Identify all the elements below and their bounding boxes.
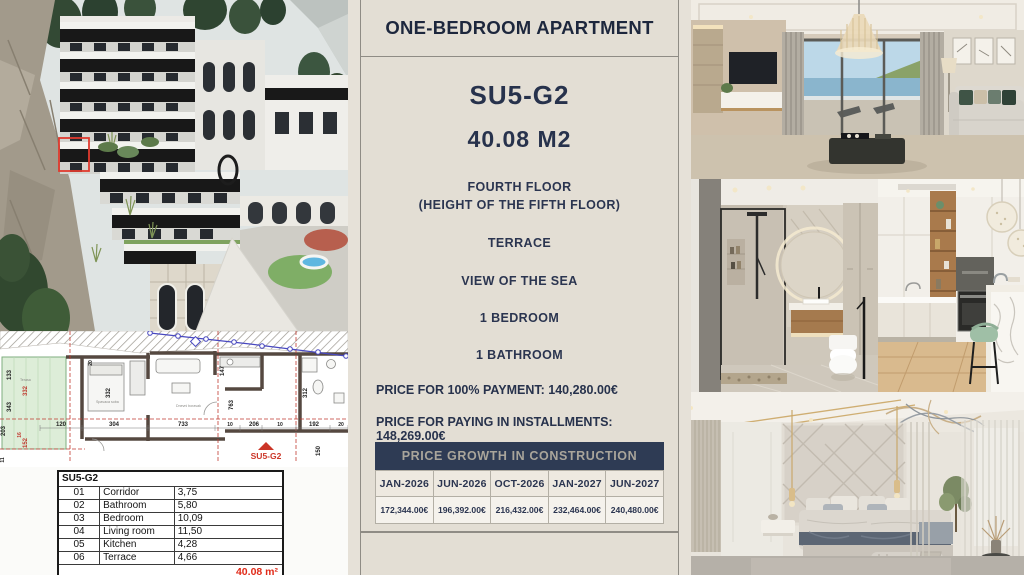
svg-text:Terasa: Terasa — [20, 378, 31, 382]
growth-col-header: JUN-2026 — [433, 471, 491, 497]
shower — [721, 205, 785, 379]
svg-text:343: 343 — [7, 401, 13, 412]
price-installments: PRICE FOR PAYING IN INSTALLMENTS: 148,26… — [376, 415, 670, 443]
table-row: 06Terrace4,66 — [58, 552, 283, 565]
table-row: JAN-2026 JUN-2026 OCT-2026 JAN-2027 JUN-… — [376, 471, 664, 497]
room-area-table: SU5-G2 01Corridor3,75 02Bathroom5,80 03B… — [57, 470, 284, 575]
row-name: Kitchen — [100, 539, 175, 552]
row-num: 01 — [58, 487, 100, 500]
svg-text:20: 20 — [338, 422, 344, 428]
table-row: 03Bedroom10,09 — [58, 513, 283, 526]
svg-text:Dnevni boravak: Dnevni boravak — [176, 404, 201, 408]
bathroom-photo — [691, 179, 878, 392]
room-table-title: SU5-G2 — [58, 471, 283, 487]
svg-text:152: 152 — [23, 437, 29, 448]
table-row: 04Living room11,50 — [58, 526, 283, 539]
row-num: 04 — [58, 526, 100, 539]
price-growth-table: JAN-2026 JUN-2026 OCT-2026 JAN-2027 JUN-… — [375, 470, 664, 524]
price-inst-value: 148,269.00€ — [376, 429, 446, 443]
slat-panel — [691, 420, 721, 552]
growth-value: 232,464.00€ — [548, 497, 606, 524]
svg-text:763: 763 — [229, 399, 235, 410]
table-row: 02Bathroom5,80 — [58, 500, 283, 513]
growth-value: 172,344.00€ — [376, 497, 434, 524]
row-num: 02 — [58, 500, 100, 513]
table-row: 01Corridor3,75 — [58, 487, 283, 500]
svg-text:20: 20 — [88, 360, 94, 366]
living-room-photo — [691, 0, 1024, 179]
apartment-flyer: 120 304 733 10 206 10 192 20 133 343 203… — [0, 0, 1024, 575]
feature-bathroom: 1 BATHROOM — [361, 348, 678, 362]
side-wall — [699, 179, 721, 392]
growth-value: 216,432.00€ — [491, 497, 549, 524]
bedroom-photo — [691, 392, 1024, 575]
page-title: ONE-BEDROOM APARTMENT — [385, 17, 653, 39]
kitchen-photo — [878, 179, 1024, 392]
svg-text:733: 733 — [178, 422, 189, 428]
feature-terrace: TERRACE — [361, 236, 678, 250]
svg-text:10: 10 — [227, 422, 233, 428]
svg-text:150: 150 — [316, 445, 322, 456]
table-row: 172,344.00€ 196,392.00€ 216,432.00€ 232,… — [376, 497, 664, 524]
row-area: 11,50 — [174, 526, 283, 539]
growth-col-header: JAN-2027 — [548, 471, 606, 497]
growth-value: 240,480.00€ — [606, 497, 664, 524]
growth-col-header: JUN-2027 — [606, 471, 664, 497]
growth-value: 196,392.00€ — [433, 497, 491, 524]
floor-plan: 120 304 733 10 206 10 192 20 133 343 203… — [0, 331, 348, 467]
svg-text:11: 11 — [0, 457, 6, 463]
mirror-vanity — [777, 205, 851, 337]
row-area: 5,80 — [174, 500, 283, 513]
row-name: Corridor — [100, 487, 175, 500]
unit-code: SU5-G2 — [361, 80, 678, 111]
panel-header: ONE-BEDROOM APARTMENT — [361, 0, 678, 57]
svg-text:16: 16 — [17, 432, 23, 438]
svg-text:192: 192 — [309, 422, 320, 428]
row-num: 03 — [58, 513, 100, 526]
left-media-wall — [691, 20, 786, 145]
svg-text:332: 332 — [106, 387, 112, 398]
building-render-image — [0, 0, 348, 331]
growth-col-header: JAN-2026 — [376, 471, 434, 497]
price-full-value: 140,280.00€ — [548, 383, 618, 397]
feature-sea-view: VIEW OF THE SEA — [361, 274, 678, 288]
svg-text:10: 10 — [277, 422, 283, 428]
details-panel: ONE-BEDROOM APARTMENT SU5-G2 40.08 M2 FO… — [360, 0, 679, 575]
svg-text:147: 147 — [220, 365, 226, 376]
svg-text:203: 203 — [1, 425, 7, 436]
table-row: SU5-G2 — [58, 471, 283, 487]
price-growth-banner: PRICE GROWTH IN CONSTRUCTION — [375, 442, 664, 470]
row-num: 05 — [58, 539, 100, 552]
row-name: Bathroom — [100, 500, 175, 513]
building-render-photo — [0, 0, 348, 331]
svg-text:312: 312 — [303, 387, 309, 398]
feature-bedroom: 1 BEDROOM — [361, 311, 678, 325]
price-full-payment: PRICE FOR 100% PAYMENT: 140,280.00€ — [376, 383, 670, 397]
row-area: 4,66 — [174, 552, 283, 565]
svg-text:120: 120 — [56, 422, 67, 428]
divider — [360, 531, 679, 533]
sofa — [949, 86, 1024, 138]
unit-area: 40.08 M2 — [361, 126, 678, 153]
feature-floor-line1: FOURTH FLOOR — [361, 180, 678, 194]
row-area: 3,75 — [174, 487, 283, 500]
svg-text:206: 206 — [249, 422, 260, 428]
svg-text:Spavaca soba: Spavaca soba — [96, 400, 119, 404]
svg-text:304: 304 — [109, 422, 120, 428]
svg-text:133: 133 — [7, 369, 13, 380]
table-row: 05Kitchen4,28 — [58, 539, 283, 552]
row-name: Terrace — [100, 552, 175, 565]
row-name: Living room — [100, 526, 175, 539]
svg-text:SU5-G2: SU5-G2 — [251, 451, 282, 461]
total-area-value: 40,08 m² — [58, 565, 283, 575]
feature-floor-line2: (HEIGHT OF THE FIFTH FLOOR) — [361, 198, 678, 212]
row-area: 10,09 — [174, 513, 283, 526]
side-wall — [721, 422, 783, 557]
price-inst-label: PRICE FOR PAYING IN INSTALLMENTS: — [376, 415, 613, 429]
row-num: 06 — [58, 552, 100, 565]
row-name: Bedroom — [100, 513, 175, 526]
growth-col-header: OCT-2026 — [491, 471, 549, 497]
svg-text:332: 332 — [23, 385, 29, 396]
row-area: 4,28 — [174, 539, 283, 552]
floor-plan-drawing: 120 304 733 10 206 10 192 20 133 343 203… — [0, 331, 348, 467]
table-row: 40,08 m² — [58, 565, 283, 575]
price-full-label: PRICE FOR 100% PAYMENT: — [376, 383, 545, 397]
